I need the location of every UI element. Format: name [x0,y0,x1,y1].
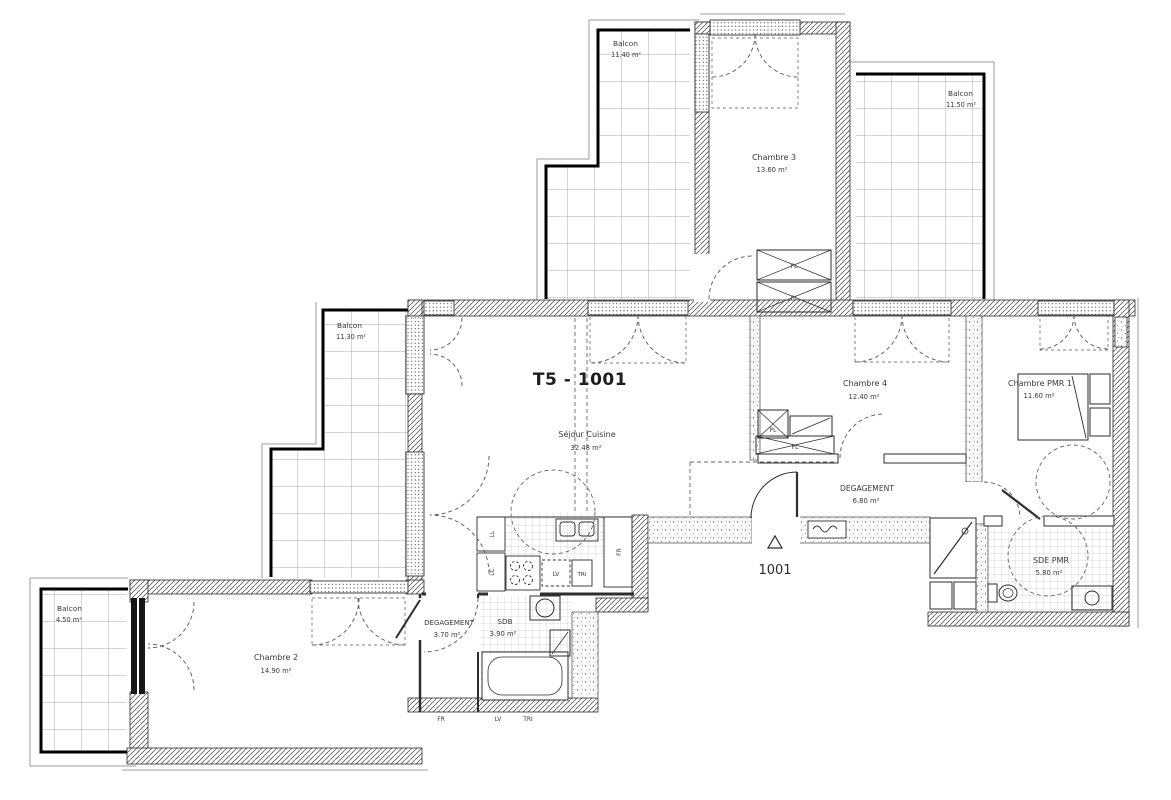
label-balcon-tl-area: 11.40 m² [611,51,641,59]
utility-cells [930,518,976,609]
label-balcon-tl-name: Balcon [613,39,638,48]
window-chambre2-balcony-door [310,581,408,593]
label-lv: LV [553,571,561,578]
turning-circle-chambre-pmr [1036,445,1110,519]
label-tri: TRI [577,572,587,578]
window-sejour-top [588,301,688,315]
label-degagement1-area: 6.80 m² [853,497,880,505]
unit-number: 1001 [758,563,791,578]
window-chambre3-balcony-door [710,20,800,35]
floor-plan-page: 1001 Balcon 11.40 m² Chambre 3 13.60 m² … [0,0,1171,800]
legend-tri: TRI [522,716,533,723]
wc-bowl [999,585,1017,601]
cooktop-burners [511,562,533,585]
closets [756,250,834,454]
window-chambre4-top [853,301,951,315]
label-sde-pmr-area: 5.80 m² [1036,569,1063,577]
floor-plan-drawing: 1001 Balcon 11.40 m² Chambre 3 13.60 m² … [0,0,1171,800]
label-chambre2-name: Chambre 2 [254,653,298,662]
label-chambre3-name: Chambre 3 [752,153,796,162]
label-chambre2-area: 14.90 m² [261,667,292,675]
legend-fr: FR [437,716,445,723]
window-sejour-corner [424,301,454,315]
label-pl-3: PL [770,427,778,434]
balcony-bottom-left [41,589,128,752]
label-balcon-tr-area: 11.50 m² [946,101,976,109]
label-degagement2-area: 3.70 m² [434,631,461,639]
label-chambre3-area: 13.60 m² [757,166,788,174]
label-sejour-name: Séjour Cuisine [558,429,615,439]
label-chambre4-area: 12.40 m² [849,393,880,401]
radiator [808,521,846,538]
cooktop [506,556,540,590]
label-fr: FR [616,548,623,556]
label-pl-4: PL [792,444,800,451]
label-pl-1: PL [791,263,799,270]
wc-tank [988,584,997,602]
label-chambre4-name: Chambre 4 [843,379,887,388]
plan-title: T5 - 1001 [533,370,627,390]
label-balcon-tr-name: Balcon [948,89,973,98]
label-sdb-name: SDB [497,617,512,626]
label-chambre-pmr-name: Chambre PMR 1 [1008,379,1072,388]
window-chambre-pmr-top [1038,301,1114,315]
label-chambre-pmr-area: 11.60 m² [1024,392,1055,400]
label-sdb-area: 3.90 m² [490,630,517,638]
label-ll: LL [489,530,496,537]
glazed-door-chambre2 [131,598,145,694]
label-degagement1-name: DEGAGEMENT [840,484,894,493]
window-sejour-left-lower [406,452,424,576]
label-sejour-area: 32.48 m² [571,444,602,452]
label-balcon-left-area: 11.30 m² [336,333,366,341]
legend-row: FR LV TRI [437,716,533,723]
window-sejour-left-upper [406,316,424,394]
label-balcon-left-name: Balcon [337,321,362,330]
ceiling-drop-line-2 [690,462,836,515]
label-sde-pmr-name: SDE PMR [1033,556,1070,565]
label-pl-2: PL [791,295,799,302]
label-balcon-bl-area: 4.50 m² [56,616,82,624]
partition-walls [572,316,988,698]
label-degagement2-name: DEGAGEMENT [424,619,474,627]
legend-lv: LV [495,716,503,723]
label-lc: LC [489,568,496,576]
window-chambre3-side [695,34,709,112]
balcony-top-left [546,30,690,299]
label-balcon-bl-name: Balcon [57,604,82,613]
